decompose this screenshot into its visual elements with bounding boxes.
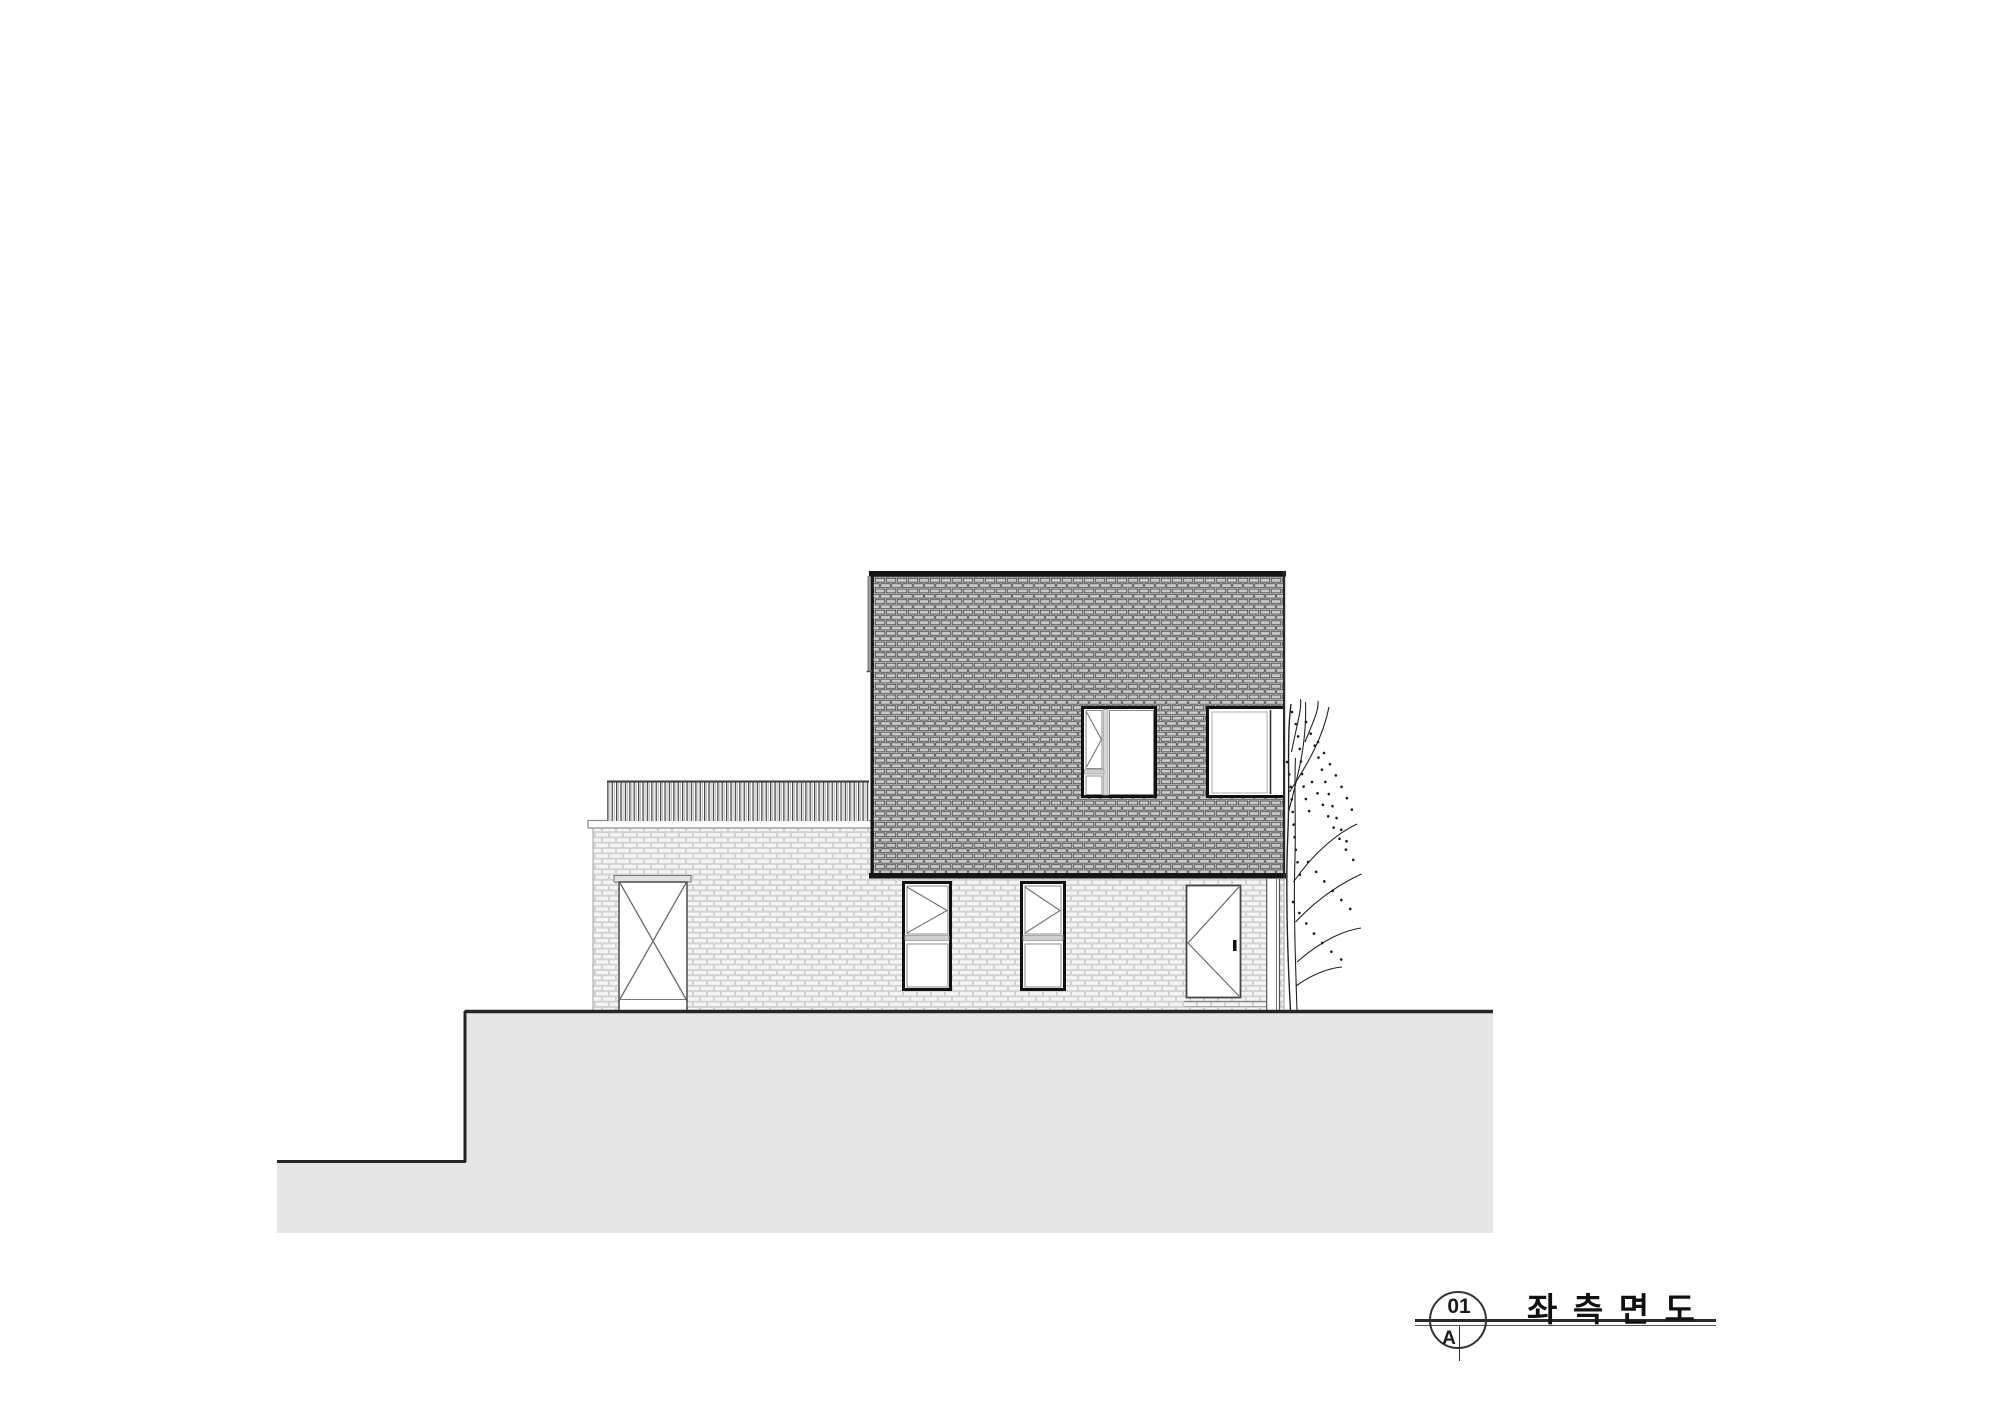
view-title: 좌 측 면 도: [1527, 1283, 1697, 1331]
window-lower-mid: [1022, 883, 1065, 990]
window-upper-left: [1083, 708, 1156, 797]
door-leaf: [1187, 886, 1241, 998]
tree: [1287, 699, 1362, 1011]
door-lintel: [614, 876, 691, 883]
view-number: 01: [1429, 1295, 1489, 1319]
railing-slats: [607, 782, 869, 821]
elevation-sheet: 01 A 좌 측 면 도: [0, 0, 2000, 1413]
ground: [277, 1011, 1493, 1233]
roof-railing: [607, 782, 869, 822]
ground-fill: [277, 1013, 1493, 1233]
window-lower-left: [904, 883, 951, 990]
parapet-cap: [588, 821, 872, 829]
window-upper-right: [1206, 706, 1283, 798]
door-handle: [1233, 940, 1237, 951]
tree-foliage-dots: [1287, 712, 1358, 960]
sheet-letter: A: [1420, 1328, 1478, 1350]
floor-band: [869, 873, 1286, 879]
tree-trunk: [1294, 758, 1297, 1011]
elevation-drawing: [0, 0, 2000, 1413]
roof-edge: [869, 571, 1286, 577]
tree-trunk: [1287, 704, 1291, 1011]
downspout: [1266, 879, 1280, 1012]
garage-door: [614, 876, 691, 1013]
